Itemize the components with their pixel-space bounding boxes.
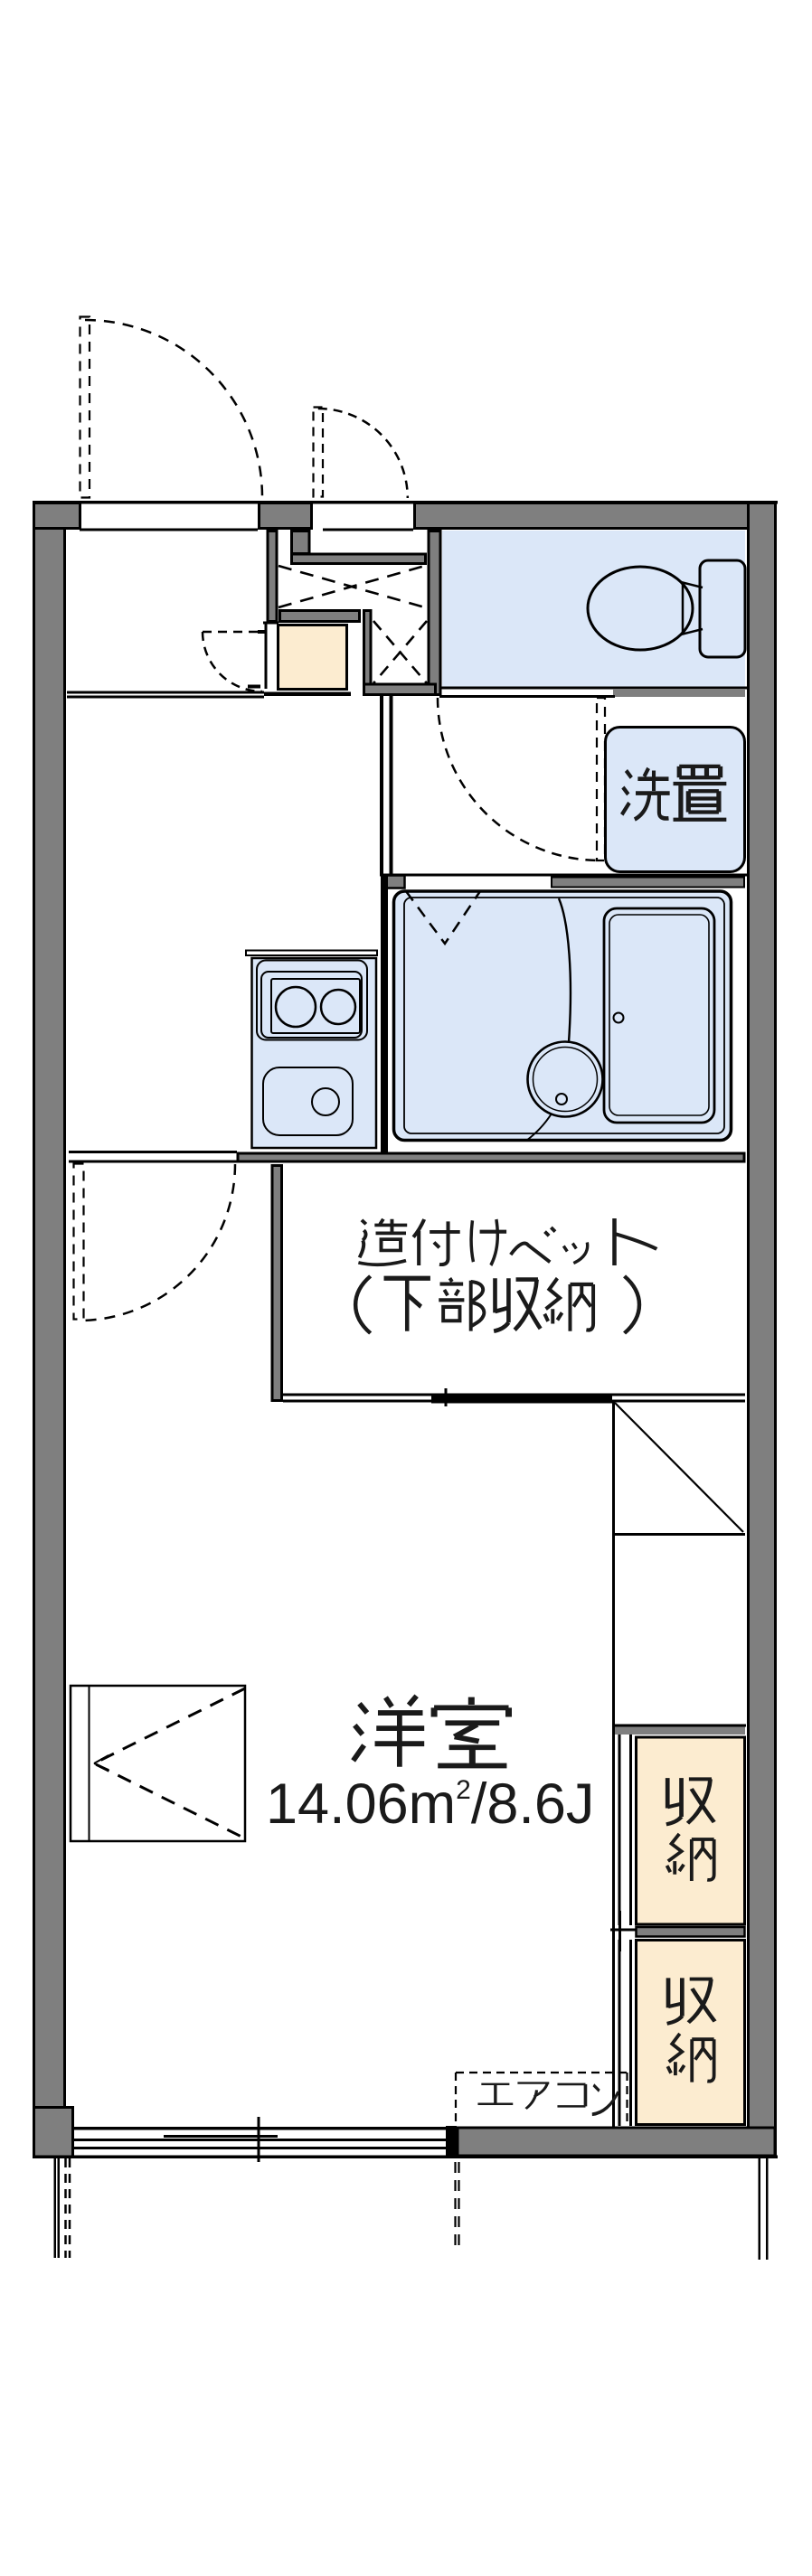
svg-text:14.06m2/8.6J: 14.06m2/8.6J bbox=[266, 1772, 594, 1836]
